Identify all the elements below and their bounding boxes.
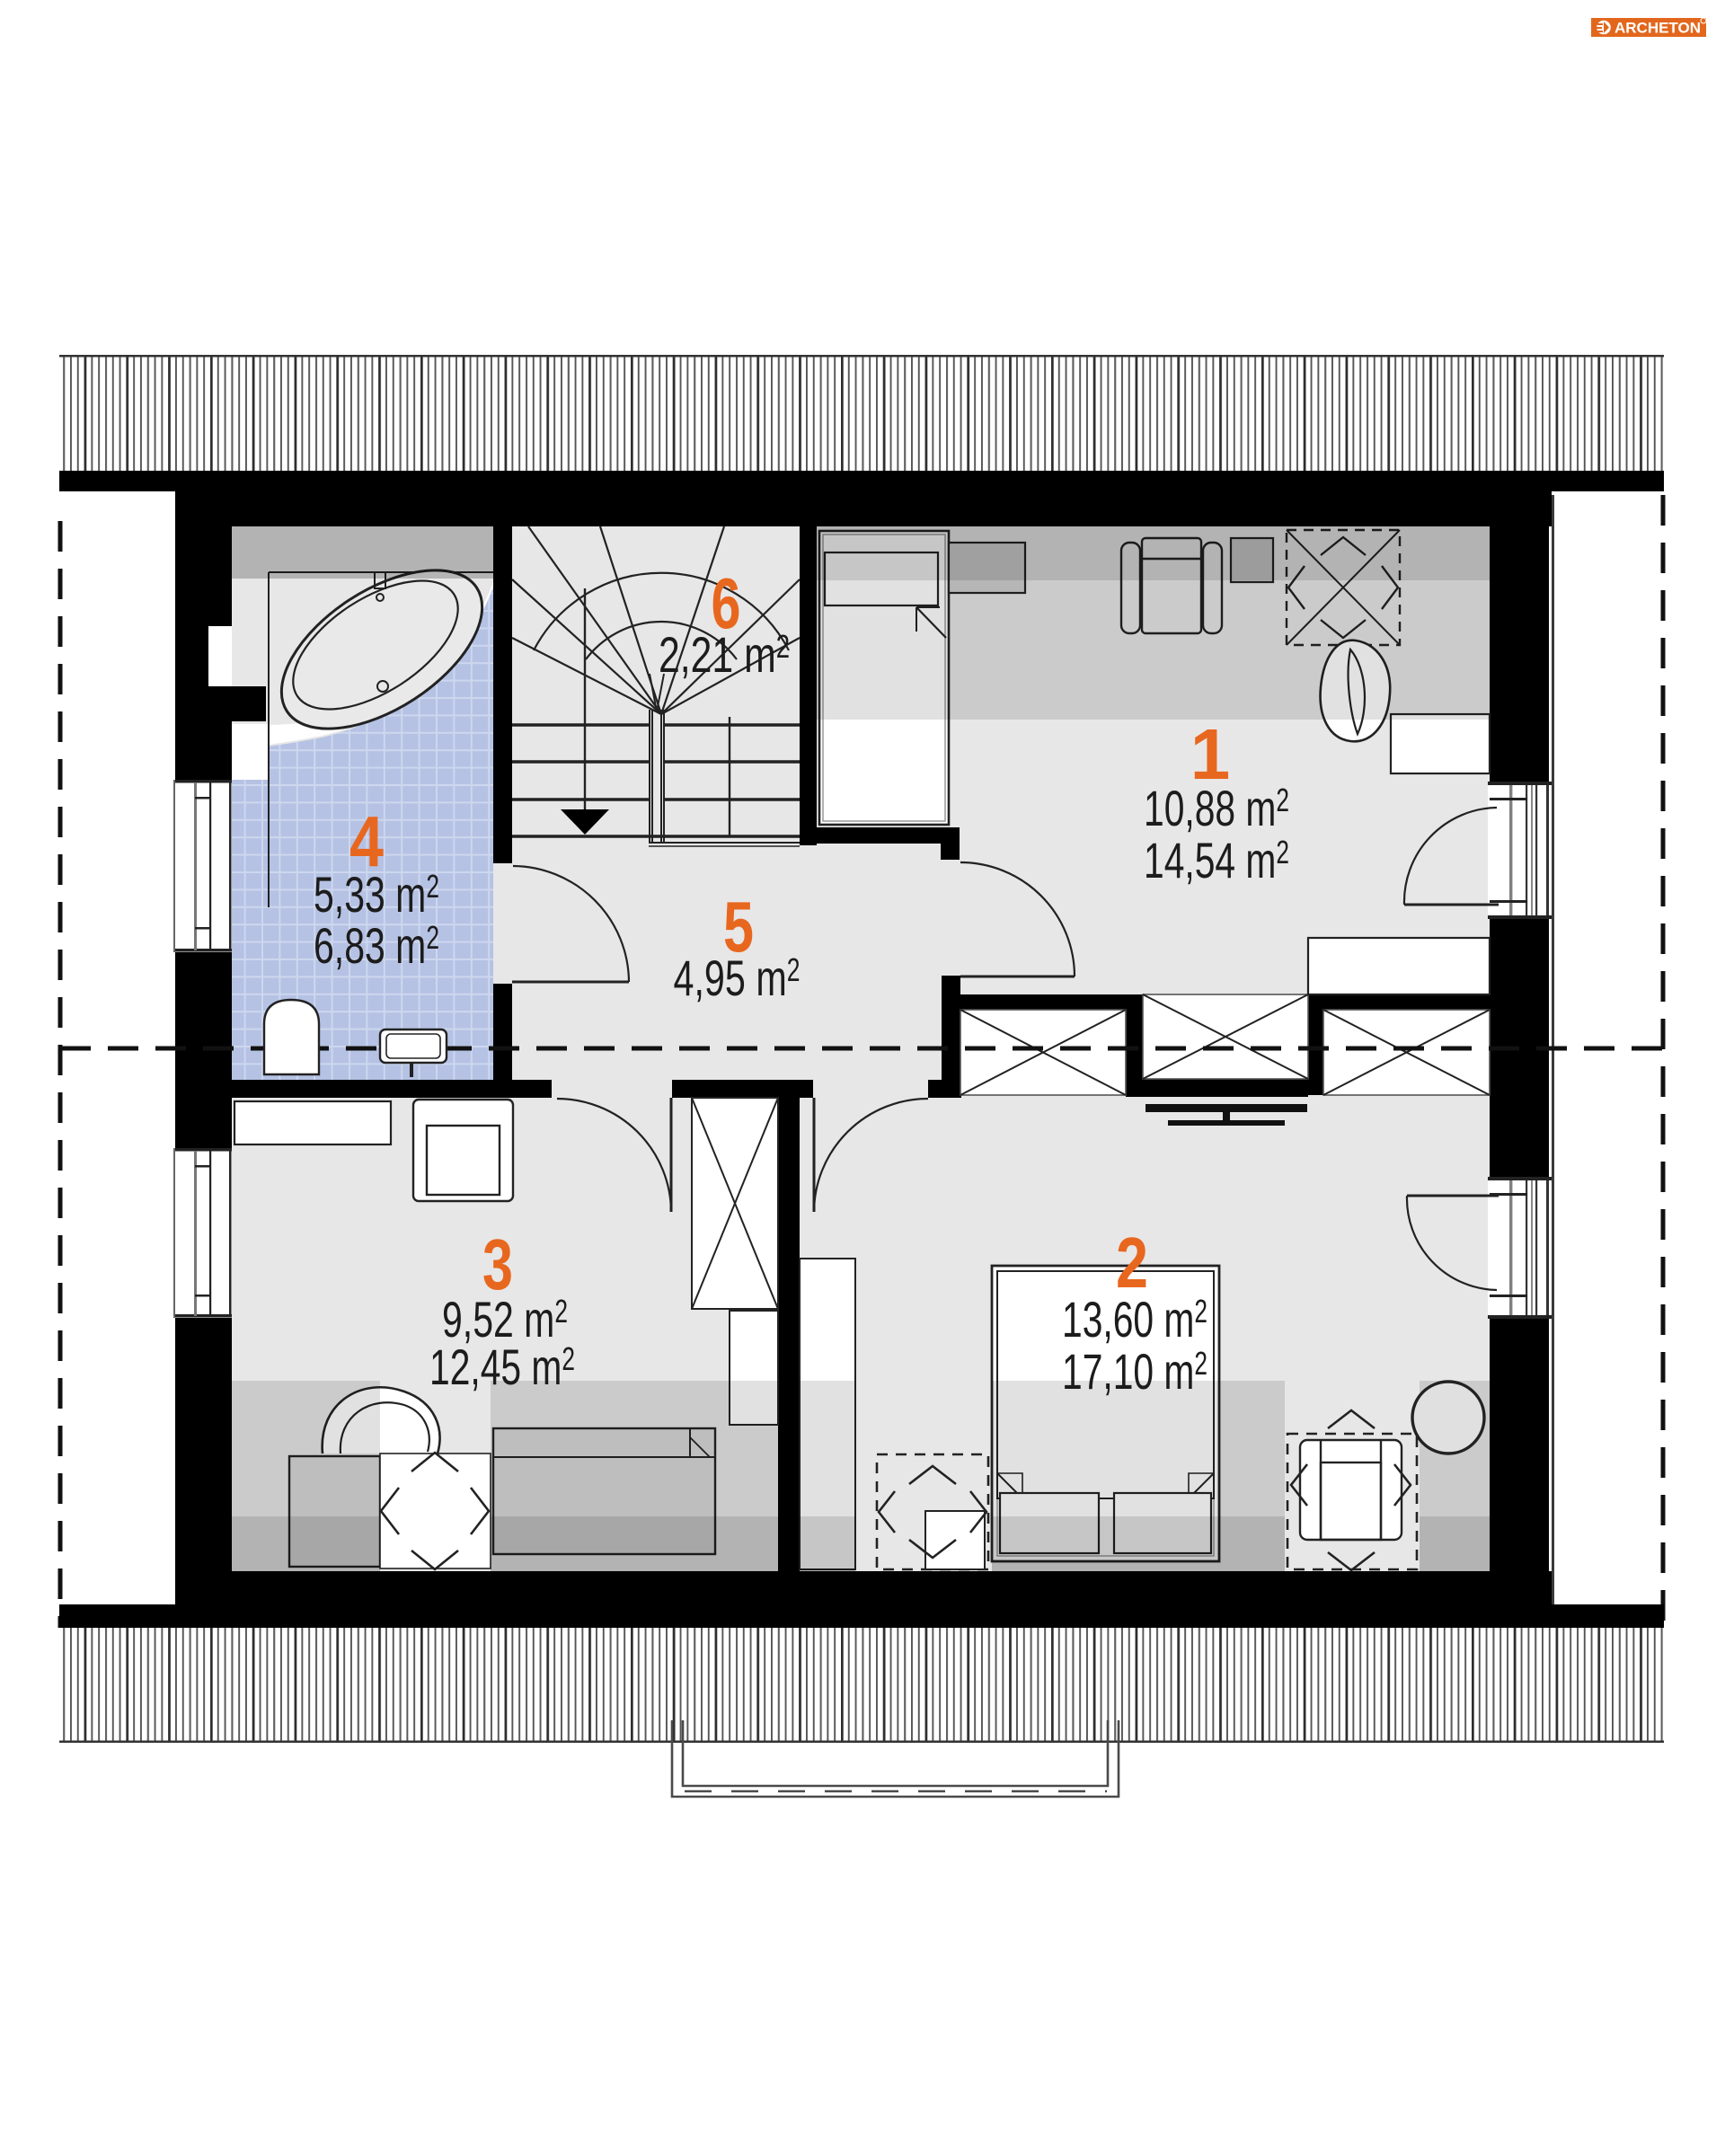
svg-text:4,95 m2: 4,95 m2 (674, 950, 801, 1006)
svg-text:5,33 m2: 5,33 m2 (314, 866, 439, 923)
svg-text:6,83 m2: 6,83 m2 (314, 917, 439, 974)
svg-text:14,54 m2: 14,54 m2 (1144, 832, 1289, 888)
svg-text:13,60 m2: 13,60 m2 (1062, 1291, 1207, 1347)
svg-text:2,21 m2: 2,21 m2 (659, 626, 790, 683)
svg-text:17,10 m2: 17,10 m2 (1062, 1343, 1207, 1400)
svg-text:12,45 m2: 12,45 m2 (429, 1339, 575, 1395)
svg-text:ARCHETON: ARCHETON (1614, 20, 1701, 37)
svg-text:10,88 m2: 10,88 m2 (1144, 780, 1289, 836)
